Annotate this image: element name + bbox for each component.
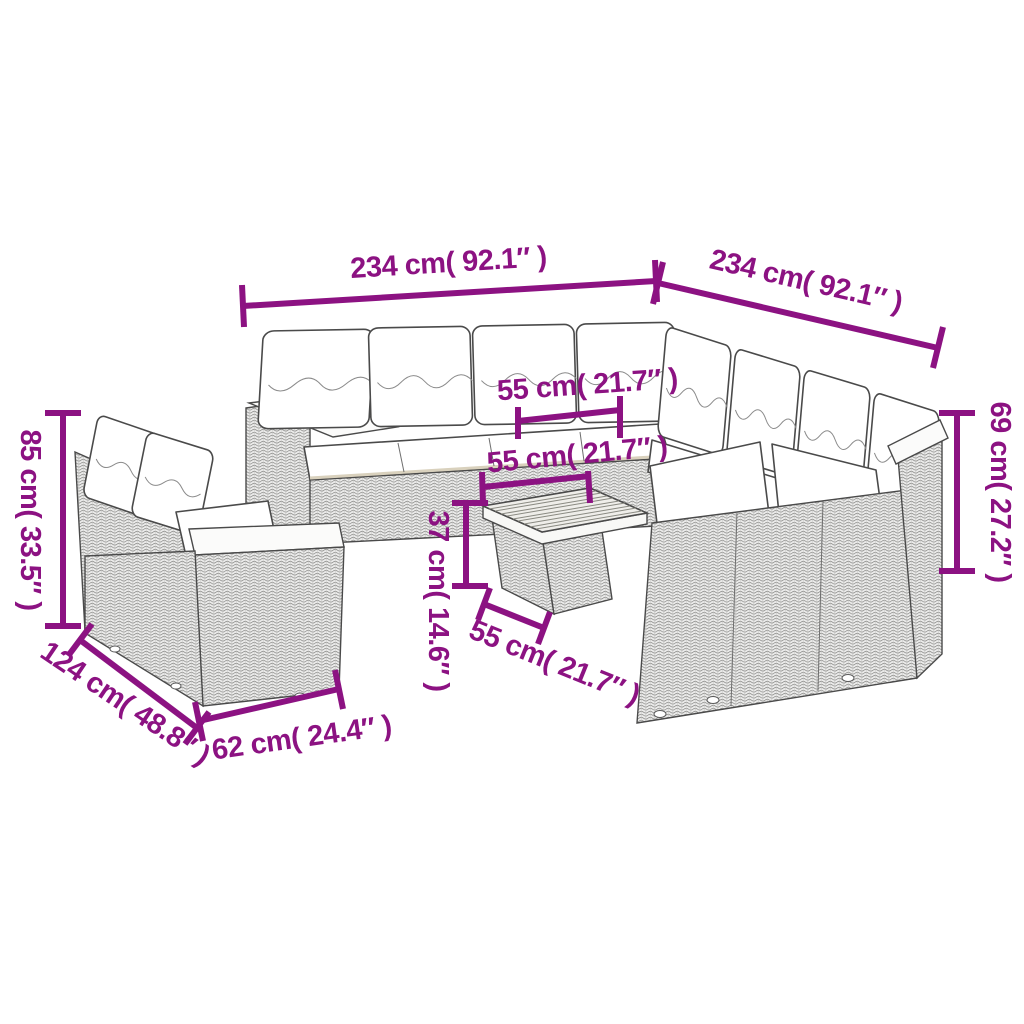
dimension-tick [588, 471, 590, 503]
back-pillow [258, 329, 376, 429]
sofa-foot [171, 683, 181, 689]
dimension-label: 55 cm( 21.7″ ) [464, 614, 644, 711]
right-wing-front-face [637, 490, 917, 723]
sofa-foot [842, 675, 854, 682]
product-diagram: 234 cm( 92.1″ ) 234 cm( 92.1″ ) 69 cm( 2… [0, 0, 1024, 1024]
dim-sofa-left-length: 234 cm( 92.1″ ) [242, 241, 657, 327]
sofa-foot [110, 646, 120, 652]
back-pillow [368, 326, 473, 427]
dimension-tick [482, 472, 483, 503]
dimension-label: 85 cm( 33.5″ ) [14, 430, 46, 611]
dim-backrest-height-right: 69 cm( 27.2″ ) [939, 402, 1016, 583]
table-pedestal-right [543, 531, 612, 614]
dimension-line [243, 281, 656, 306]
sofa-foot [654, 711, 666, 718]
corner-sofa-right-wing [637, 326, 948, 723]
dim-backrest-height-left: 85 cm( 33.5″ ) [14, 413, 81, 626]
dimension-diagram-svg: 234 cm( 92.1″ ) 234 cm( 92.1″ ) 69 cm( 2… [0, 0, 1024, 1024]
dimension-tick [335, 670, 343, 709]
dimension-label: 69 cm( 27.2″ ) [984, 402, 1016, 583]
dimension-tick [242, 285, 244, 327]
dimension-label: 62 cm( 24.4″ ) [210, 710, 394, 767]
dimension-label: 37 cm( 14.6″ ) [422, 511, 454, 692]
dimension-label: 234 cm( 92.1″ ) [349, 241, 547, 285]
sofa-foot [707, 697, 719, 704]
coffee-table [483, 488, 647, 614]
two-seater-armrest-front [195, 547, 344, 706]
dimension-label: 234 cm( 92.1″ ) [707, 244, 906, 319]
